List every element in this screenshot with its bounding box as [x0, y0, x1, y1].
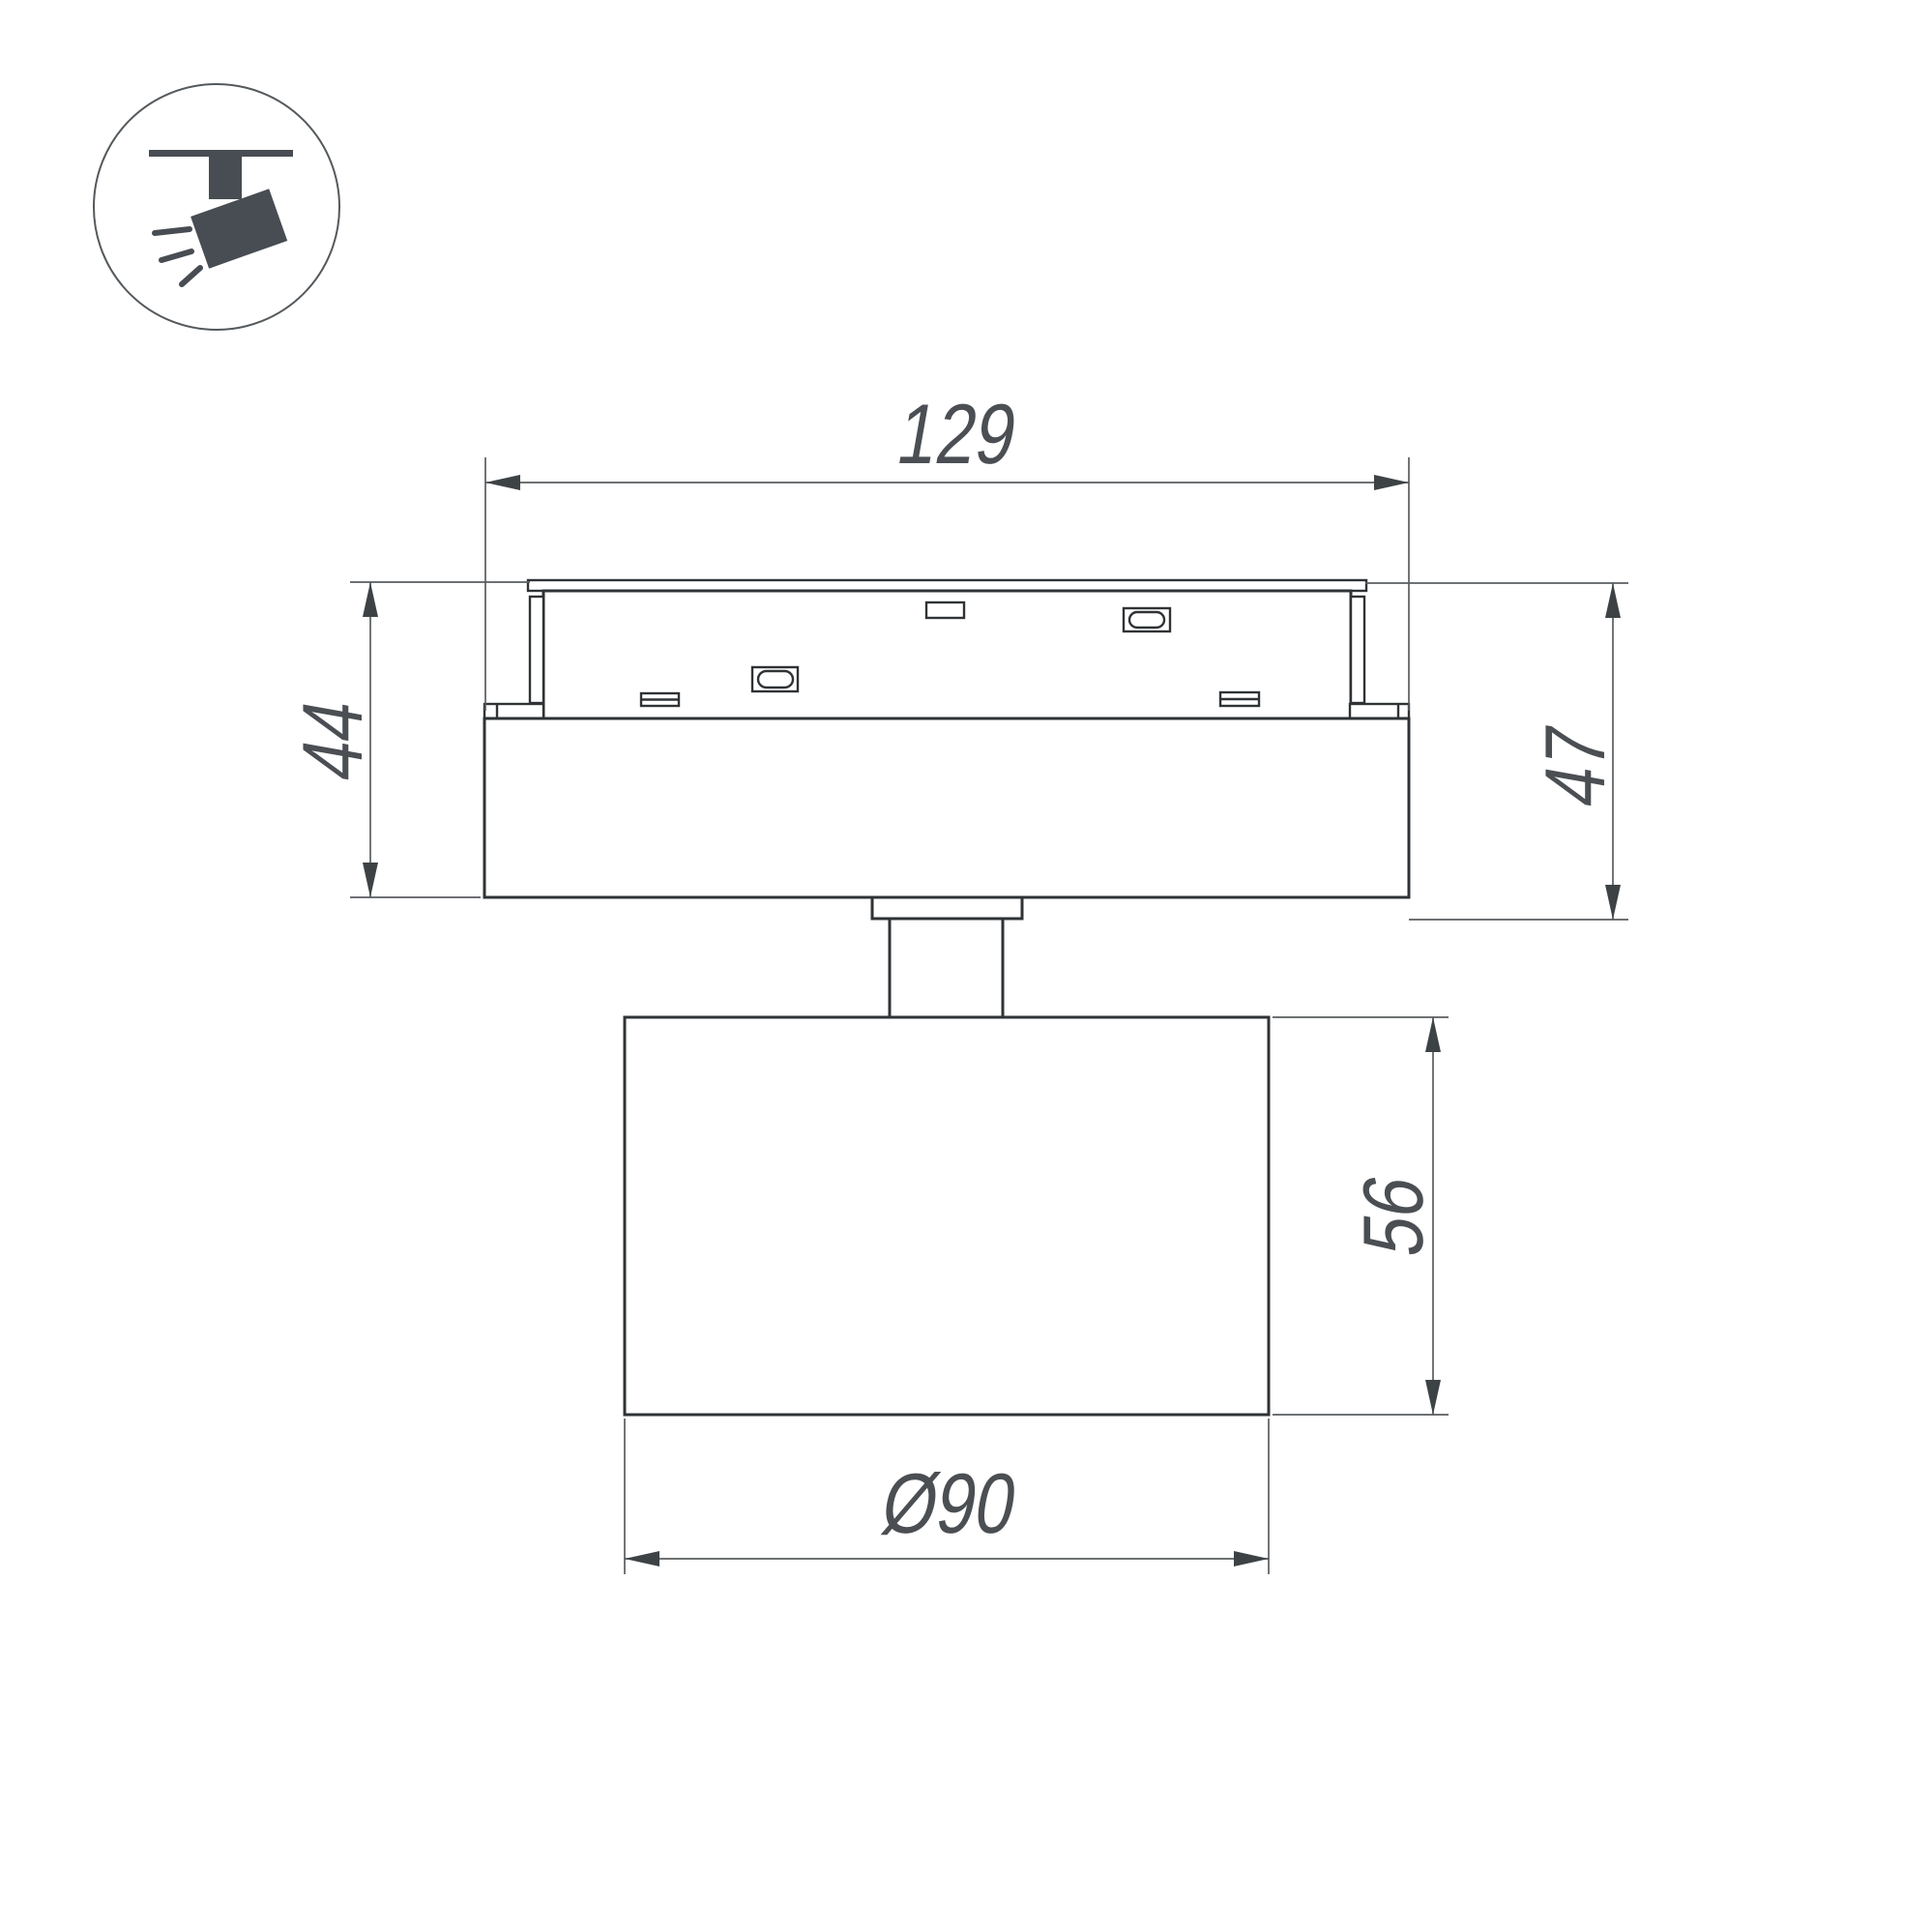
- dimension-value: 129: [891, 387, 1024, 483]
- lamp-cylinder: [625, 1017, 1269, 1415]
- dimension-body-height: 56: [1273, 1017, 1449, 1415]
- icon-light-ray: [155, 229, 190, 233]
- dimension-value: 47: [1528, 718, 1624, 813]
- icon-circle: [94, 84, 339, 330]
- adapter-tab-left: [484, 704, 543, 718]
- arrow-down: [1605, 885, 1621, 920]
- adapter-contact-oval-left: [758, 671, 793, 688]
- arrow-right: [1374, 475, 1409, 490]
- adapter-contact-oval-right: [1129, 612, 1164, 628]
- dimension-value: 56: [1346, 1168, 1442, 1263]
- adapter-small-slot: [926, 602, 964, 618]
- arrow-left: [485, 475, 520, 490]
- dimension-value: 44: [285, 692, 381, 787]
- arrow-down: [363, 863, 378, 897]
- adapter-top-plate: [528, 580, 1366, 591]
- adapter-clip-left: [530, 597, 543, 703]
- icon-stem: [209, 155, 242, 199]
- track-spotlight-icon: [94, 84, 339, 330]
- pivot-stem: [890, 919, 1003, 1017]
- arrow-up: [363, 582, 378, 617]
- arrow-down: [1425, 1380, 1441, 1415]
- pivot-flange: [872, 897, 1022, 919]
- arrow-up: [1605, 583, 1621, 618]
- driver-base: [484, 718, 1409, 897]
- fixture-front-view: [484, 580, 1409, 1415]
- arrow-up: [1425, 1017, 1441, 1052]
- adapter-clip-right: [1351, 597, 1364, 703]
- arrow-right: [1234, 1551, 1269, 1566]
- dimension-value: Ø90: [875, 1456, 1024, 1552]
- arrow-left: [625, 1551, 659, 1566]
- dimension-body-diameter: Ø90: [625, 1419, 1269, 1574]
- adapter-tab-right: [1350, 704, 1409, 718]
- drawing-canvas: 129 44 47 56: [0, 0, 1932, 1932]
